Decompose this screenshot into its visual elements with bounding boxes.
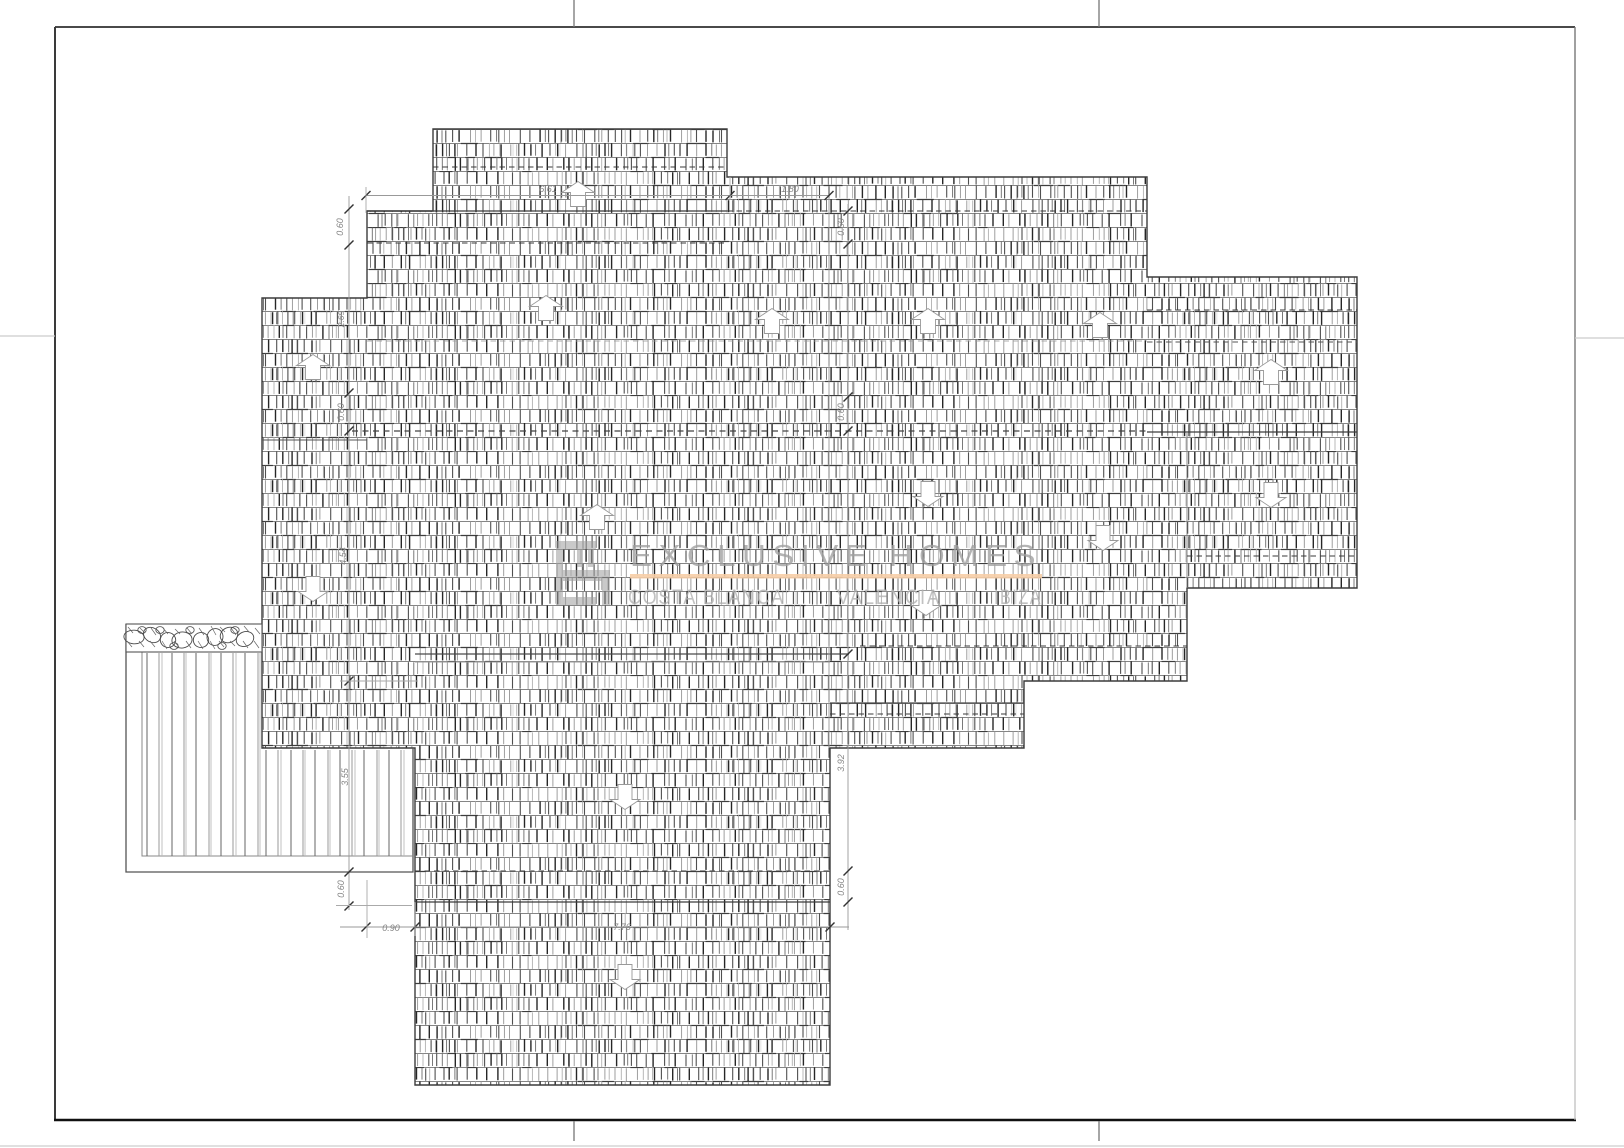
svg-text:0.60: 0.60 <box>336 880 346 898</box>
svg-text:7.76: 7.76 <box>613 922 631 932</box>
svg-text:1.80: 1.80 <box>781 184 799 194</box>
svg-text:0.90: 0.90 <box>382 923 400 933</box>
svg-text:3.55: 3.55 <box>340 767 350 786</box>
svg-text:0.60: 0.60 <box>335 218 345 236</box>
svg-text:0.60: 0.60 <box>336 403 346 421</box>
svg-text:2.69: 2.69 <box>336 310 346 328</box>
svg-text:0.60: 0.60 <box>836 218 846 236</box>
svg-text:0.60: 0.60 <box>836 403 846 421</box>
svg-text:0.60: 0.60 <box>836 878 846 896</box>
svg-text:IBIZA: IBIZA <box>994 586 1042 609</box>
svg-text:EXCLUSIVE HOMES: EXCLUSIVE HOMES <box>630 538 1042 573</box>
svg-text:4.54: 4.54 <box>338 547 348 565</box>
svg-text:6.61: 6.61 <box>539 184 557 194</box>
svg-text:VALENCIA: VALENCIA <box>837 586 941 609</box>
svg-text:3.92: 3.92 <box>836 754 846 772</box>
svg-text:COSTA BLANCA: COSTA BLANCA <box>628 586 785 609</box>
